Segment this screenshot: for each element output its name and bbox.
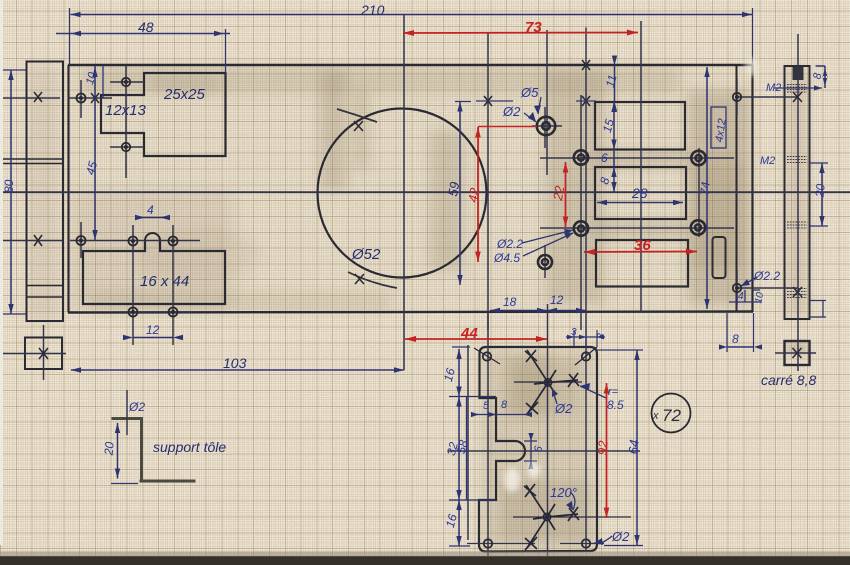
svg-text:M2: M2 [760,155,775,167]
svg-text:74: 74 [698,181,713,196]
svg-text:28: 28 [631,185,648,201]
svg-text:Ø2: Ø2 [554,401,573,416]
svg-text:4: 4 [147,203,154,217]
svg-text:12: 12 [550,293,564,307]
svg-text:5: 5 [483,400,490,412]
svg-text:8: 8 [732,332,739,346]
svg-text:12x13: 12x13 [105,102,147,119]
svg-text:92: 92 [595,439,611,455]
svg-text:44: 44 [460,325,478,342]
svg-text:103: 103 [223,355,247,371]
svg-text:Ø4.5: Ø4.5 [493,251,520,265]
svg-text:73: 73 [525,19,542,36]
svg-text:r=: r= [608,386,619,398]
svg-text:210: 210 [360,2,385,18]
svg-text:120°: 120° [550,485,577,500]
svg-text:Ø5: Ø5 [520,85,539,100]
svg-text:80: 80 [2,179,16,193]
svg-text:48: 48 [138,19,154,35]
svg-text:16 x 44: 16 x 44 [140,273,189,290]
svg-text:support tôle: support tôle [153,439,226,455]
svg-text:8.5: 8.5 [607,398,624,412]
svg-text:6: 6 [601,151,608,165]
svg-text:59: 59 [445,181,462,198]
svg-text:x: x [652,410,659,422]
svg-text:64: 64 [626,439,642,455]
svg-text:Ø2: Ø2 [502,104,521,119]
svg-text:20: 20 [101,441,116,457]
svg-text:M2: M2 [766,82,781,94]
svg-text:12: 12 [146,323,160,337]
svg-text:4: 4 [738,291,744,302]
svg-text:18: 18 [503,295,517,309]
svg-text:25x25: 25x25 [163,86,206,103]
svg-text:72: 72 [662,406,681,425]
svg-text:20: 20 [812,183,827,199]
svg-text:8: 8 [501,399,508,411]
svg-text:3: 3 [571,327,577,338]
svg-text:Ø2: Ø2 [611,529,630,544]
svg-text:Ø52: Ø52 [351,246,381,263]
svg-text:Ø2.2: Ø2.2 [496,237,523,251]
svg-text:36: 36 [634,237,651,254]
svg-text:Ø2.2: Ø2.2 [753,269,780,283]
svg-text:Ø2: Ø2 [128,400,145,414]
svg-text:carré 8,8: carré 8,8 [761,372,816,388]
